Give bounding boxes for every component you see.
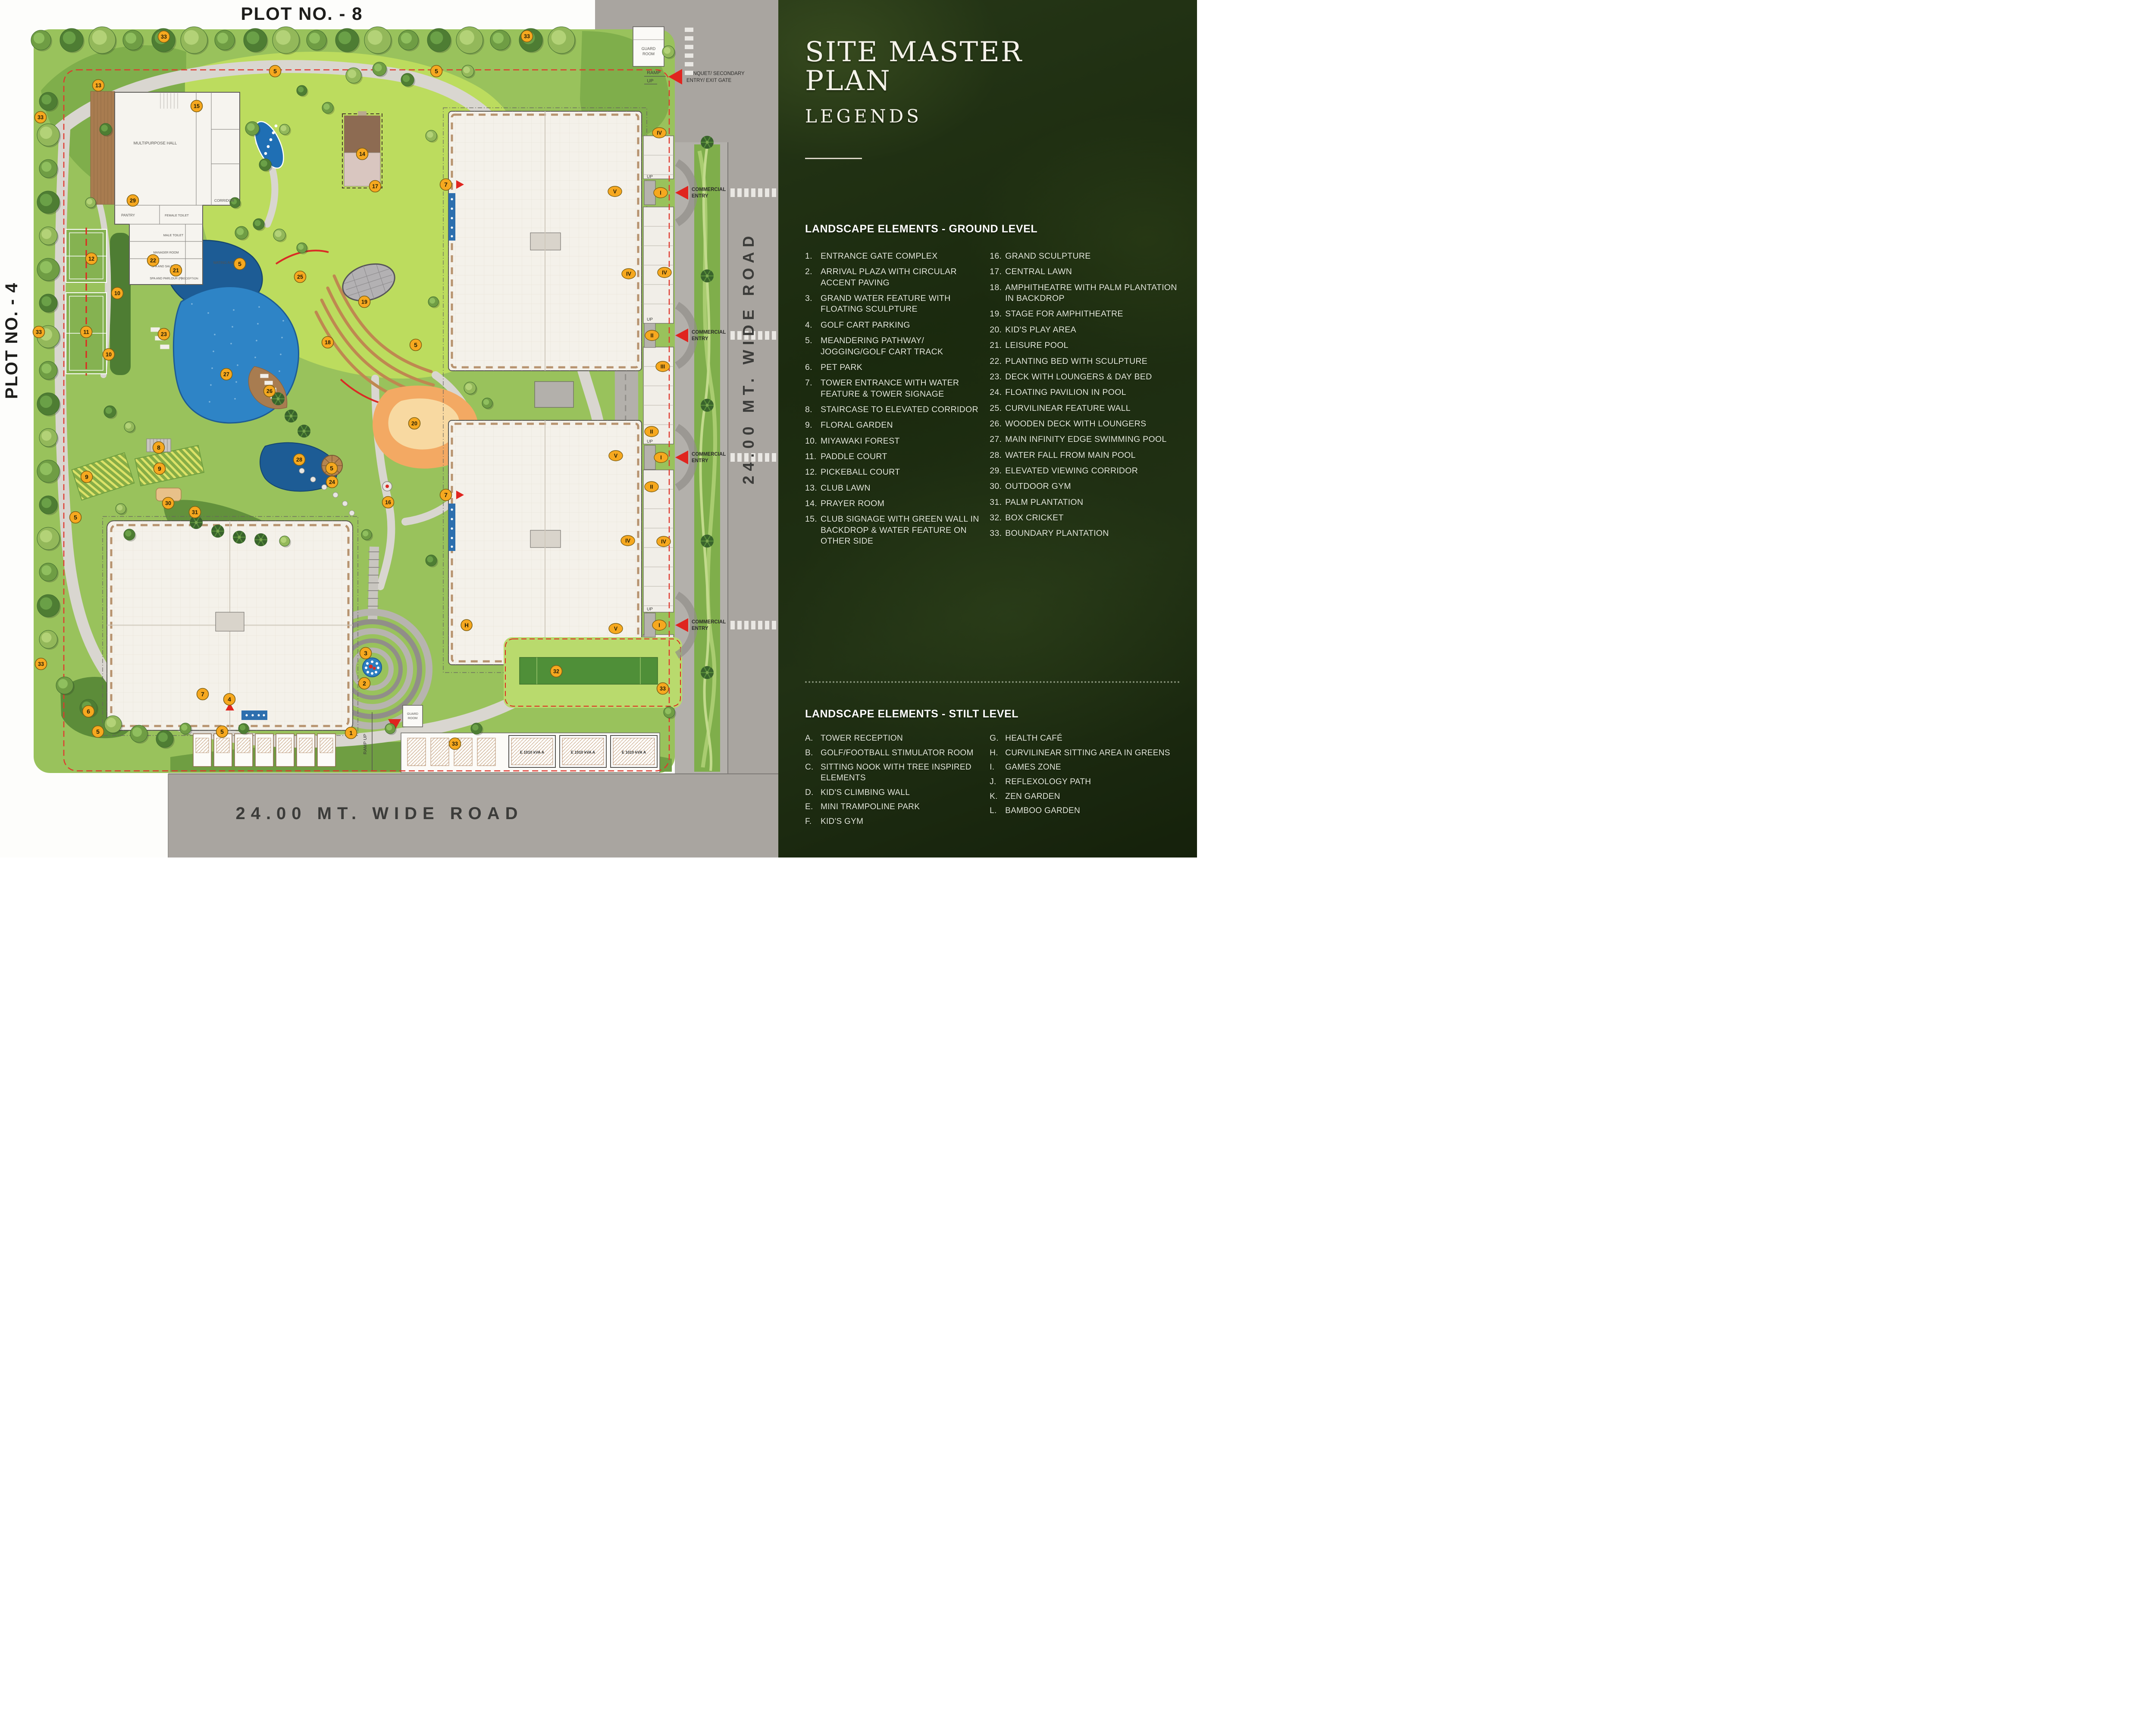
- svg-text:III: III: [661, 364, 665, 370]
- legend-item-number: 6.: [805, 362, 821, 373]
- legend-item-number: 5.: [805, 335, 821, 357]
- svg-text:5: 5: [273, 68, 277, 75]
- legend-item-number: 26.: [990, 419, 1005, 429]
- svg-text:9: 9: [158, 465, 161, 472]
- svg-text:IV: IV: [661, 539, 666, 545]
- plan-marker-23: 23: [158, 329, 170, 340]
- svg-text:5: 5: [238, 260, 241, 267]
- legend-item-number: G.: [990, 733, 1005, 744]
- guard-room-northeast: GUARD ROOM: [633, 27, 664, 66]
- plan-marker-5: 5: [92, 726, 104, 738]
- up-ramp-label: UP: [647, 317, 653, 322]
- transformer-label: E 1010 kVA A: [622, 750, 646, 754]
- legend-item: H.CURVILINEAR SITTING AREA IN GREENS: [990, 748, 1180, 759]
- legend-item-number: 14.: [805, 498, 821, 509]
- svg-text:20: 20: [411, 421, 417, 427]
- roman-badge-III: III: [656, 361, 670, 372]
- legend-item-number: F.: [805, 817, 821, 827]
- plan-marker-3: 3: [360, 648, 372, 659]
- legend-item: 6.PET PARK: [805, 362, 981, 373]
- svg-text:7: 7: [201, 691, 204, 698]
- guard-room-entrance: GUARD ROOM: [403, 705, 423, 727]
- svg-text:V: V: [613, 189, 617, 195]
- legend-item-label: PALM PLANTATION: [1005, 497, 1180, 508]
- legend-item: L.BAMBOO GARDEN: [990, 806, 1180, 817]
- commercial-entry-label: COMMERCIAL: [692, 452, 726, 457]
- plan-marker-21: 21: [170, 265, 182, 276]
- svg-text:33: 33: [524, 34, 530, 40]
- legend-item: 29.ELEVATED VIEWING CORRIDOR: [990, 466, 1180, 476]
- svg-text:10: 10: [106, 352, 112, 358]
- svg-text:26: 26: [266, 388, 273, 394]
- plan-marker-18: 18: [322, 337, 334, 348]
- legend-item-label: MEANDERING PATHWAY/ JOGGING/GOLF CART TR…: [821, 335, 981, 357]
- legend-item: 26.WOODEN DECK WITH LOUNGERS: [990, 419, 1180, 429]
- legend-item-number: 31.: [990, 497, 1005, 508]
- plan-marker-5: 5: [234, 258, 246, 270]
- legend-item-number: 30.: [990, 481, 1005, 492]
- svg-text:23: 23: [161, 332, 167, 338]
- legend-item-label: PICKEBALL COURT: [821, 467, 981, 478]
- svg-text:BANQUET/ SECONDARY: BANQUET/ SECONDARY: [686, 71, 745, 76]
- plan-marker-19: 19: [359, 296, 370, 308]
- right-road-label: 24.00 MT. WIDE ROAD: [740, 231, 757, 484]
- letter-badge-H: H: [461, 620, 472, 631]
- legend-item-number: 13.: [805, 483, 821, 494]
- plan-marker-33: 33: [449, 738, 461, 750]
- svg-text:11: 11: [83, 329, 89, 335]
- svg-text:I: I: [660, 190, 661, 196]
- legend-item: 3.GRAND WATER FEATURE WITH FLOATING SCUL…: [805, 293, 981, 315]
- legend-item: E.MINI TRAMPOLINE PARK: [805, 802, 981, 813]
- plan-marker-4: 4: [224, 694, 235, 705]
- legend-item-number: E.: [805, 802, 821, 813]
- plan-marker-33: 33: [35, 112, 47, 123]
- roman-badge-I: I: [652, 620, 666, 630]
- plan-marker-25: 25: [295, 271, 306, 283]
- plan-marker-17: 17: [370, 181, 381, 192]
- legend-item: 1.ENTRANCE GATE COMPLEX: [805, 251, 981, 262]
- roman-badge-IV: IV: [621, 535, 635, 546]
- svg-text:ENTRY: ENTRY: [692, 194, 708, 199]
- svg-text:6: 6: [87, 708, 90, 715]
- plan-marker-9: 9: [154, 463, 166, 475]
- svg-text:33: 33: [36, 329, 42, 335]
- ground-level-list: 1.ENTRANCE GATE COMPLEX2.ARRIVAL PLAZA W…: [805, 251, 1180, 551]
- legend-item-label: WATER FALL FROM MAIN POOL: [1005, 450, 1180, 461]
- svg-text:33: 33: [38, 661, 44, 667]
- legend-item: F.KID'S GYM: [805, 817, 981, 827]
- plan-marker-1: 1: [345, 727, 357, 739]
- up-ramp-label: UP: [647, 175, 653, 179]
- legend-item-number: 20.: [990, 325, 1005, 335]
- plan-marker-9: 9: [81, 471, 93, 483]
- svg-text:25: 25: [297, 274, 303, 280]
- legend-item-label: KID'S GYM: [821, 817, 981, 827]
- legend-item: J.REFLEXOLOGY PATH: [990, 777, 1180, 788]
- svg-text:13: 13: [95, 83, 101, 89]
- svg-text:ROOM: ROOM: [642, 52, 655, 56]
- legend-item-label: MINI TRAMPOLINE PARK: [821, 802, 981, 813]
- ground-level-heading: LANDSCAPE ELEMENTS - GROUND LEVEL: [805, 223, 1180, 235]
- svg-text:ENTRY: ENTRY: [692, 458, 708, 463]
- plan-marker-33: 33: [158, 31, 170, 43]
- svg-text:12: 12: [88, 256, 94, 262]
- legend-item-number: 15.: [805, 514, 821, 547]
- plan-marker-5: 5: [410, 339, 422, 351]
- legend-item-label: KID'S PLAY AREA: [1005, 325, 1180, 335]
- legend-item-number: C.: [805, 762, 821, 783]
- legend-item-number: 10.: [805, 436, 821, 447]
- legend-item-number: 1.: [805, 251, 821, 262]
- legend-item-number: L.: [990, 806, 1005, 817]
- plan-marker-5: 5: [431, 66, 442, 77]
- plan-marker-20: 20: [409, 418, 420, 429]
- legend-item: 31.PALM PLANTATION: [990, 497, 1180, 508]
- legend-item: 9.FLORAL GARDEN: [805, 420, 981, 431]
- svg-text:MALE TOILET: MALE TOILET: [163, 233, 184, 237]
- plan-marker-33: 33: [35, 658, 47, 670]
- legend-item-number: B.: [805, 748, 821, 759]
- legend-item-label: FLOATING PAVILION IN POOL: [1005, 387, 1180, 398]
- svg-text:32: 32: [553, 669, 559, 675]
- svg-text:28: 28: [296, 457, 302, 463]
- svg-text:ROOM: ROOM: [408, 716, 417, 720]
- legend-item: 17.CENTRAL LAWN: [990, 266, 1180, 277]
- svg-text:5: 5: [96, 728, 100, 735]
- svg-text:IV: IV: [626, 271, 631, 277]
- legend-item-label: GRAND SCULPTURE: [1005, 251, 1180, 262]
- legend-item: 19.STAGE FOR AMPHITHEATRE: [990, 309, 1180, 319]
- svg-text:27: 27: [223, 372, 229, 378]
- plan-marker-27: 27: [221, 369, 232, 380]
- plan-marker-33: 33: [33, 326, 45, 338]
- legend-item-label: ARRIVAL PLAZA WITH CIRCULAR ACCENT PAVIN…: [821, 266, 981, 288]
- svg-text:1: 1: [349, 729, 353, 736]
- legend-item-label: CURVILINEAR SITTING AREA IN GREENS: [1005, 748, 1180, 759]
- legend-item: 12.PICKEBALL COURT: [805, 467, 981, 478]
- stilt-level-heading: LANDSCAPE ELEMENTS - STILT LEVEL: [805, 708, 1180, 720]
- roman-badge-V: V: [609, 451, 623, 461]
- plan-marker-14: 14: [357, 148, 368, 160]
- legend-item-label: DECK WITH LOUNGERS & DAY BED: [1005, 372, 1180, 382]
- legend-item-number: 9.: [805, 420, 821, 431]
- legend-item-label: ZEN GARDEN: [1005, 792, 1180, 802]
- svg-text:II: II: [650, 429, 653, 435]
- svg-text:II: II: [651, 333, 654, 339]
- legend-item: 15.CLUB SIGNAGE WITH GREEN WALL IN BACKD…: [805, 514, 981, 547]
- plan-marker-29: 29: [127, 195, 139, 207]
- svg-text:5: 5: [74, 514, 77, 521]
- legend-item: K.ZEN GARDEN: [990, 792, 1180, 802]
- panel-title: SITE MASTER PLAN: [805, 38, 1180, 95]
- svg-text:SPA AND PARLOUR (F): SPA AND PARLOUR (F): [150, 277, 182, 280]
- legend-item-number: 25.: [990, 403, 1005, 414]
- legend-item-label: STAIRCASE TO ELEVATED CORRIDOR: [821, 404, 981, 415]
- svg-text:H: H: [464, 622, 469, 629]
- legend-item-number: 23.: [990, 372, 1005, 382]
- legend-item-label: TOWER ENTRANCE WITH WATER FEATURE & TOWE…: [821, 378, 981, 400]
- svg-text:5: 5: [414, 341, 417, 348]
- svg-text:15: 15: [194, 103, 200, 110]
- legend-item-number: I.: [990, 762, 1005, 773]
- svg-text:MANAGER ROOM: MANAGER ROOM: [153, 251, 179, 254]
- plan-marker-7: 7: [440, 489, 452, 501]
- legend-item-label: GOLF/FOOTBALL STIMULATOR ROOM: [821, 748, 981, 759]
- legend-item-label: BOUNDARY PLANTATION: [1005, 528, 1180, 539]
- legend-item-label: CENTRAL LAWN: [1005, 266, 1180, 277]
- svg-text:ENTRY/ EXIT GATE: ENTRY/ EXIT GATE: [686, 78, 731, 83]
- legend-item-number: D.: [805, 788, 821, 798]
- panel-title-line1: SITE MASTER: [805, 38, 1180, 67]
- legend-item: 22.PLANTING BED WITH SCULPTURE: [990, 356, 1180, 367]
- legend-item: D.KID'S CLIMBING WALL: [805, 788, 981, 798]
- legend-item-label: STAGE FOR AMPHITHEATRE: [1005, 309, 1180, 319]
- legend-item-label: REFLEXOLOGY PATH: [1005, 777, 1180, 788]
- legend-column: 16.GRAND SCULPTURE17.CENTRAL LAWN18.AMPH…: [990, 251, 1180, 551]
- legend-item-number: 22.: [990, 356, 1005, 367]
- svg-text:9: 9: [85, 473, 88, 480]
- legend-item-number: 28.: [990, 450, 1005, 461]
- plan-marker-5: 5: [216, 726, 228, 738]
- svg-text:IV: IV: [662, 270, 667, 276]
- legend-item-label: KID'S CLIMBING WALL: [821, 788, 981, 798]
- svg-text:ENTRY: ENTRY: [692, 626, 708, 631]
- svg-text:PANTRY: PANTRY: [121, 213, 135, 217]
- svg-text:14: 14: [359, 151, 365, 157]
- legend-item-label: PET PARK: [821, 362, 981, 373]
- svg-text:FEMALE TOILET: FEMALE TOILET: [165, 213, 189, 217]
- svg-text:V: V: [614, 626, 618, 632]
- legend-item-number: H.: [990, 748, 1005, 759]
- svg-text:2: 2: [363, 680, 366, 687]
- panel-subtitle: LEGENDS: [805, 106, 1180, 127]
- commercial-entry-label: COMMERCIAL: [692, 330, 726, 335]
- legend-item: 5.MEANDERING PATHWAY/ JOGGING/GOLF CART …: [805, 335, 981, 357]
- legend-item: 10.MIYAWAKI FOREST: [805, 436, 981, 447]
- legend-item: C.SITTING NOOK WITH TREE INSPIRED ELEMEN…: [805, 762, 981, 783]
- roman-badge-V: V: [609, 623, 623, 634]
- legend-item-number: 4.: [805, 320, 821, 331]
- title-underline: [805, 158, 862, 159]
- roman-badge-IV: IV: [652, 128, 666, 138]
- legend-item: 25.CURVILINEAR FEATURE WALL: [990, 403, 1180, 414]
- svg-text:5: 5: [220, 728, 224, 735]
- commercial-entry-label: COMMERCIAL: [692, 187, 726, 192]
- plan-marker-30: 30: [163, 498, 174, 509]
- legend-item-label: CURVILINEAR FEATURE WALL: [1005, 403, 1180, 414]
- legend-item: 28.WATER FALL FROM MAIN POOL: [990, 450, 1180, 461]
- svg-text:5: 5: [435, 68, 438, 75]
- plan-marker-8: 8: [153, 442, 165, 454]
- svg-text:33: 33: [38, 115, 44, 121]
- svg-text:33: 33: [452, 741, 458, 747]
- svg-text:4: 4: [228, 696, 231, 703]
- roman-badge-V: V: [608, 186, 622, 197]
- svg-text:MULTIPURPOSE HALL: MULTIPURPOSE HALL: [134, 141, 177, 146]
- legend-item-number: 32.: [990, 513, 1005, 523]
- plan-marker-13: 13: [93, 80, 104, 91]
- legend-item-number: 24.: [990, 387, 1005, 398]
- roman-badge-IV: IV: [657, 536, 671, 547]
- svg-text:29: 29: [130, 198, 136, 204]
- legend-item: 30.OUTDOOR GYM: [990, 481, 1180, 492]
- legend-item: 18.AMPHITHEATRE WITH PALM PLANTATION IN …: [990, 282, 1180, 304]
- roman-badge-II: II: [645, 426, 658, 437]
- legend-item: 33.BOUNDARY PLANTATION: [990, 528, 1180, 539]
- svg-text:I: I: [658, 623, 660, 629]
- svg-text:IV: IV: [625, 538, 630, 544]
- shops-row: [193, 734, 335, 767]
- legend-item-number: 27.: [990, 434, 1005, 445]
- service-strip: E 1010 kVA AE 1010 kVA AE 1010 kVA A: [401, 733, 660, 773]
- legend-item: 23.DECK WITH LOUNGERS & DAY BED: [990, 372, 1180, 382]
- legend-item-label: CLUB SIGNAGE WITH GREEN WALL IN BACKDROP…: [821, 514, 981, 547]
- svg-text:33: 33: [660, 686, 666, 692]
- roman-badge-I: I: [654, 188, 667, 198]
- svg-text:7: 7: [444, 491, 448, 498]
- svg-text:WATING AREA: WATING AREA: [213, 261, 237, 265]
- legend-item-number: 3.: [805, 293, 821, 315]
- legend-item-label: MAIN INFINITY EDGE SWIMMING POOL: [1005, 434, 1180, 445]
- plan-marker-5: 5: [70, 512, 81, 523]
- legend-column: 1.ENTRANCE GATE COMPLEX2.ARRIVAL PLAZA W…: [805, 251, 981, 551]
- up-ramp-label: UP: [647, 607, 653, 612]
- plan-marker-16: 16: [382, 497, 394, 508]
- legend-item-number: 8.: [805, 404, 821, 415]
- svg-text:17: 17: [372, 184, 378, 190]
- legend-item: 14.PRAYER ROOM: [805, 498, 981, 509]
- legend-item-label: ENTRANCE GATE COMPLEX: [821, 251, 981, 262]
- plot-4-label: PLOT NO. - 4: [2, 282, 21, 399]
- legend-item: 4.GOLF CART PARKING: [805, 320, 981, 331]
- plan-marker-10: 10: [103, 349, 115, 360]
- svg-text:24: 24: [329, 479, 335, 485]
- roman-badge-I: I: [654, 452, 668, 463]
- legend-item-label: LEISURE POOL: [1005, 340, 1180, 351]
- legend-item-label: PLANTING BED WITH SCULPTURE: [1005, 356, 1180, 367]
- svg-text:30: 30: [165, 501, 171, 507]
- legend-item: 2.ARRIVAL PLAZA WITH CIRCULAR ACCENT PAV…: [805, 266, 981, 288]
- legend-item-number: 33.: [990, 528, 1005, 539]
- legend-item-label: CLUB LAWN: [821, 483, 981, 494]
- plan-marker-26: 26: [264, 385, 276, 397]
- legend-item-number: 16.: [990, 251, 1005, 262]
- plan-marker-24: 24: [326, 476, 338, 488]
- section-divider: [805, 681, 1180, 683]
- grand-water-feature: [363, 658, 382, 677]
- legend-item: I.GAMES ZONE: [990, 762, 1180, 773]
- stilt-level-list: A.TOWER RECEPTIONB.GOLF/FOOTBALL STIMULA…: [805, 733, 1180, 831]
- plan-marker-15: 15: [191, 100, 203, 112]
- legend-item-label: GRAND WATER FEATURE WITH FLOATING SCULPT…: [821, 293, 981, 315]
- plan-marker-11: 11: [81, 326, 92, 338]
- legend-item-number: 29.: [990, 466, 1005, 476]
- panel-title-line2: PLAN: [805, 67, 1180, 96]
- plan-marker-33: 33: [521, 31, 533, 42]
- legend-item-number: 18.: [990, 282, 1005, 304]
- legend-column: A.TOWER RECEPTIONB.GOLF/FOOTBALL STIMULA…: [805, 733, 981, 831]
- roman-badge-II: II: [645, 330, 659, 341]
- legend-item: 24.FLOATING PAVILION IN POOL: [990, 387, 1180, 398]
- box-cricket: [504, 637, 682, 708]
- svg-text:IV: IV: [657, 130, 662, 136]
- svg-text:3: 3: [364, 650, 367, 657]
- bottom-road-label: 24.00 MT. WIDE ROAD: [235, 804, 523, 823]
- legend-column: G.HEALTH CAFÉH.CURVILINEAR SITTING AREA …: [990, 733, 1180, 831]
- transformer-label: E 1010 kVA A: [520, 750, 545, 754]
- up-ramp-label: UP: [647, 439, 653, 444]
- plan-marker-2: 2: [359, 678, 370, 689]
- roman-badge-IV: IV: [622, 269, 636, 279]
- plan-marker-12: 12: [86, 253, 97, 265]
- legend-item-label: ELEVATED VIEWING CORRIDOR: [1005, 466, 1180, 476]
- legend-item: 7.TOWER ENTRANCE WITH WATER FEATURE & TO…: [805, 378, 981, 400]
- legend-panel: SITE MASTER PLAN LEGENDS LANDSCAPE ELEME…: [778, 0, 1197, 857]
- roman-badge-II: II: [645, 482, 658, 492]
- plan-marker-6: 6: [83, 706, 94, 717]
- svg-text:RECEPTION: RECEPTION: [181, 277, 198, 280]
- svg-text:I: I: [660, 455, 661, 461]
- legend-item-label: BOX CRICKET: [1005, 513, 1180, 523]
- svg-text:31: 31: [192, 510, 198, 516]
- roman-badge-IV: IV: [658, 267, 671, 278]
- svg-text:RAMP: RAMP: [647, 70, 661, 75]
- svg-text:10: 10: [114, 291, 120, 297]
- commercial-entry-label: COMMERCIAL: [692, 620, 726, 625]
- stilt-level-section: LANDSCAPE ELEMENTS - STILT LEVEL A.TOWER…: [778, 681, 1197, 831]
- svg-text:CORRIDOR: CORRIDOR: [214, 198, 234, 203]
- legend-item-number: 2.: [805, 266, 821, 288]
- svg-text:16: 16: [385, 500, 391, 506]
- legend-item-label: PADDLE COURT: [821, 451, 981, 462]
- svg-text:8: 8: [157, 444, 160, 451]
- legend-item-number: 7.: [805, 378, 821, 400]
- svg-text:33: 33: [161, 34, 167, 40]
- legend-item-label: AMPHITHEATRE WITH PALM PLANTATION IN BAC…: [1005, 282, 1180, 304]
- grand-sculpture: [382, 482, 392, 491]
- legend-item-number: K.: [990, 792, 1005, 802]
- legend-item: 8.STAIRCASE TO ELEVATED CORRIDOR: [805, 404, 981, 415]
- plan-marker-5: 5: [326, 463, 338, 474]
- legend-item-label: BAMBOO GARDEN: [1005, 806, 1180, 817]
- legend-item-label: PRAYER ROOM: [821, 498, 981, 509]
- plan-marker-28: 28: [294, 454, 305, 466]
- legend-item: 21.LEISURE POOL: [990, 340, 1180, 351]
- legend-item-label: SITTING NOOK WITH TREE INSPIRED ELEMENTS: [821, 762, 981, 783]
- legend-item: 11.PADDLE COURT: [805, 451, 981, 462]
- legend-item-number: 12.: [805, 467, 821, 478]
- plot-8-label: PLOT NO. - 8: [241, 3, 363, 24]
- ramp-up-vertical-label: RAMP UP: [363, 734, 368, 754]
- site-master-plan-page: RAMP UP: [0, 0, 1197, 857]
- svg-text:GUARD: GUARD: [642, 47, 656, 51]
- plan-marker-5: 5: [269, 66, 281, 77]
- svg-text:19: 19: [361, 299, 367, 305]
- svg-text:21: 21: [173, 268, 179, 274]
- plan-marker-31: 31: [189, 507, 201, 518]
- legend-item-number: A.: [805, 733, 821, 744]
- legend-item: 20.KID'S PLAY AREA: [990, 325, 1180, 335]
- legend-item-label: TOWER RECEPTION: [821, 733, 981, 744]
- legend-item: 13.CLUB LAWN: [805, 483, 981, 494]
- legend-item: B.GOLF/FOOTBALL STIMULATOR ROOM: [805, 748, 981, 759]
- legend-item: 32.BOX CRICKET: [990, 513, 1180, 523]
- legend-item: 27.MAIN INFINITY EDGE SWIMMING POOL: [990, 434, 1180, 445]
- legend-item-number: 11.: [805, 451, 821, 462]
- svg-text:II: II: [650, 484, 653, 490]
- site-plan-canvas: RAMP UP: [0, 0, 778, 857]
